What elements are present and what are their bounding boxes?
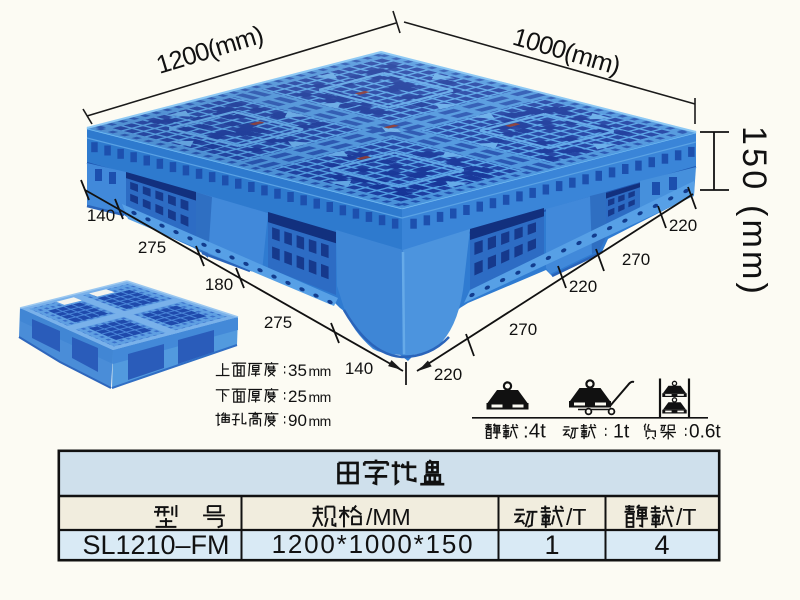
svg-text:220: 220 xyxy=(669,216,697,235)
svg-text:140: 140 xyxy=(345,359,373,378)
svg-text:35: 35 xyxy=(288,361,307,380)
svg-text:1200*1000*150: 1200*1000*150 xyxy=(272,529,475,559)
svg-text:/MM: /MM xyxy=(366,504,411,530)
svg-text:220: 220 xyxy=(434,365,462,384)
svg-text:270: 270 xyxy=(622,250,650,269)
svg-text:1: 1 xyxy=(544,530,559,560)
svg-text:25: 25 xyxy=(288,387,307,406)
svg-text:/T: /T xyxy=(566,504,586,530)
svg-text:275: 275 xyxy=(138,238,166,257)
svg-text:90: 90 xyxy=(288,411,307,430)
svg-text:1t: 1t xyxy=(613,421,630,443)
svg-text:SL1210–FM: SL1210–FM xyxy=(82,530,229,560)
svg-text:140: 140 xyxy=(87,206,115,225)
svg-text:mm: mm xyxy=(309,389,331,405)
svg-text:0.6t: 0.6t xyxy=(689,422,721,443)
svg-text:270: 270 xyxy=(509,320,537,339)
svg-text:150 (mm): 150 (mm) xyxy=(735,126,773,297)
svg-text:/T: /T xyxy=(676,504,696,530)
svg-text:220: 220 xyxy=(569,277,597,296)
svg-text:275: 275 xyxy=(264,313,292,332)
svg-text::4t: :4t xyxy=(523,420,546,443)
svg-text:180: 180 xyxy=(205,275,233,294)
svg-text:mm: mm xyxy=(309,363,331,379)
svg-text:4: 4 xyxy=(654,530,669,560)
svg-text:mm: mm xyxy=(309,413,331,429)
